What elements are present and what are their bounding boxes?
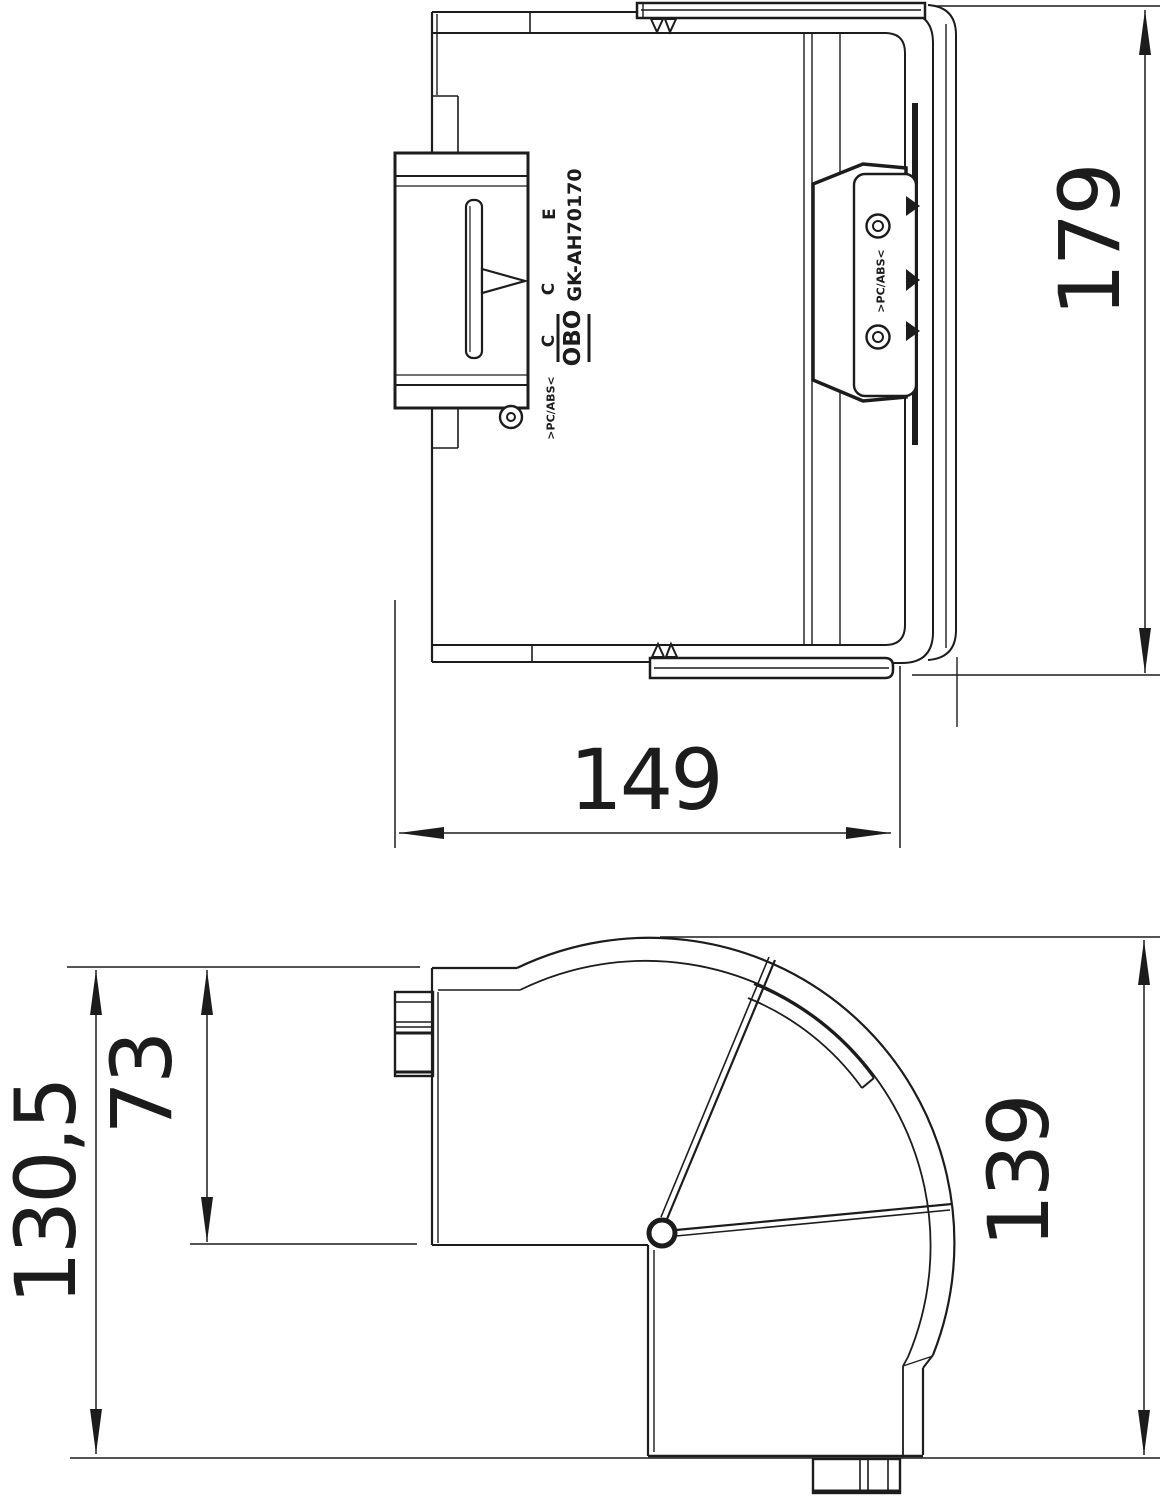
brand-logo: OBO xyxy=(560,310,586,367)
flap-band-outer xyxy=(754,984,874,1078)
arrowhead-down-icon xyxy=(90,1409,102,1454)
material-marking-left: >PC/ABS< xyxy=(545,376,558,439)
arrowhead-right-icon xyxy=(846,827,891,839)
dimension-139: 139 xyxy=(660,937,1160,1455)
arrowhead-up-icon xyxy=(1139,10,1151,55)
latch-screw-outer xyxy=(500,406,522,428)
arrowhead-down-icon xyxy=(201,1197,213,1242)
dimension-149: 149 xyxy=(395,600,900,848)
left-latch xyxy=(395,153,528,428)
top-view: >PC/ABS< GK-AH70170 OBO >PC/ABS< E C C 1… xyxy=(395,3,1160,848)
latch-boss-upper xyxy=(432,96,458,153)
technical-drawing-canvas: >PC/ABS< GK-AH70170 OBO >PC/ABS< E C C 1… xyxy=(0,0,1164,1500)
arrowhead-up-icon xyxy=(90,970,102,1015)
arrowhead-left-icon xyxy=(399,827,444,839)
mold-mark-bottom: C xyxy=(539,335,559,347)
flap-edge-upper xyxy=(667,960,775,1219)
hinge-pin xyxy=(649,1220,675,1246)
foot-lines xyxy=(860,1459,888,1493)
side-view: 130,5 73 139 xyxy=(0,937,1160,1493)
top-notch-2 xyxy=(665,19,676,32)
latch-boss-lower xyxy=(432,408,458,448)
top-notch-1 xyxy=(651,19,663,32)
foot-connector xyxy=(813,1459,900,1493)
drawing-svg: >PC/ABS< GK-AH70170 OBO >PC/ABS< E C C 1… xyxy=(0,0,1164,1500)
right-latch: >PC/ABS< xyxy=(813,164,920,401)
flap-band-cut xyxy=(862,1078,874,1088)
dimension-label: 149 xyxy=(569,731,720,829)
outer-arc xyxy=(517,938,954,1355)
dimension-73: 73 xyxy=(93,970,417,1244)
product-code-label: GK-AH70170 xyxy=(564,168,586,301)
arrowhead-down-icon xyxy=(1138,1410,1150,1455)
dimension-label: 130,5 xyxy=(0,1079,95,1304)
flap-edge-lower-inner xyxy=(676,1210,950,1236)
inner-arc xyxy=(520,961,931,1357)
mold-mark-middle: C xyxy=(539,283,559,295)
foot-body xyxy=(813,1459,900,1493)
arrowhead-up-icon xyxy=(201,970,213,1015)
arrowhead-down-icon xyxy=(1139,628,1151,673)
hinged-flap xyxy=(649,957,952,1246)
mold-mark-top: E xyxy=(540,208,560,220)
molded-part-labels: GK-AH70170 OBO >PC/ABS< E C C xyxy=(539,168,589,439)
bottom-connector-band xyxy=(650,644,893,678)
port-stub-lines xyxy=(395,1002,433,1027)
flap-edge-lower xyxy=(676,1204,952,1230)
dimension-179: 179 xyxy=(912,6,1160,675)
flap-edge-upper-inner xyxy=(661,957,769,1217)
material-marking-right: >PC/ABS< xyxy=(875,249,888,312)
side-view-body xyxy=(395,938,954,1456)
dimension-label: 179 xyxy=(1041,165,1139,316)
dimension-label: 139 xyxy=(970,1096,1068,1247)
top-connector-band xyxy=(637,3,925,32)
dimension-label: 73 xyxy=(93,1034,191,1135)
arrowhead-up-icon xyxy=(1138,940,1150,985)
